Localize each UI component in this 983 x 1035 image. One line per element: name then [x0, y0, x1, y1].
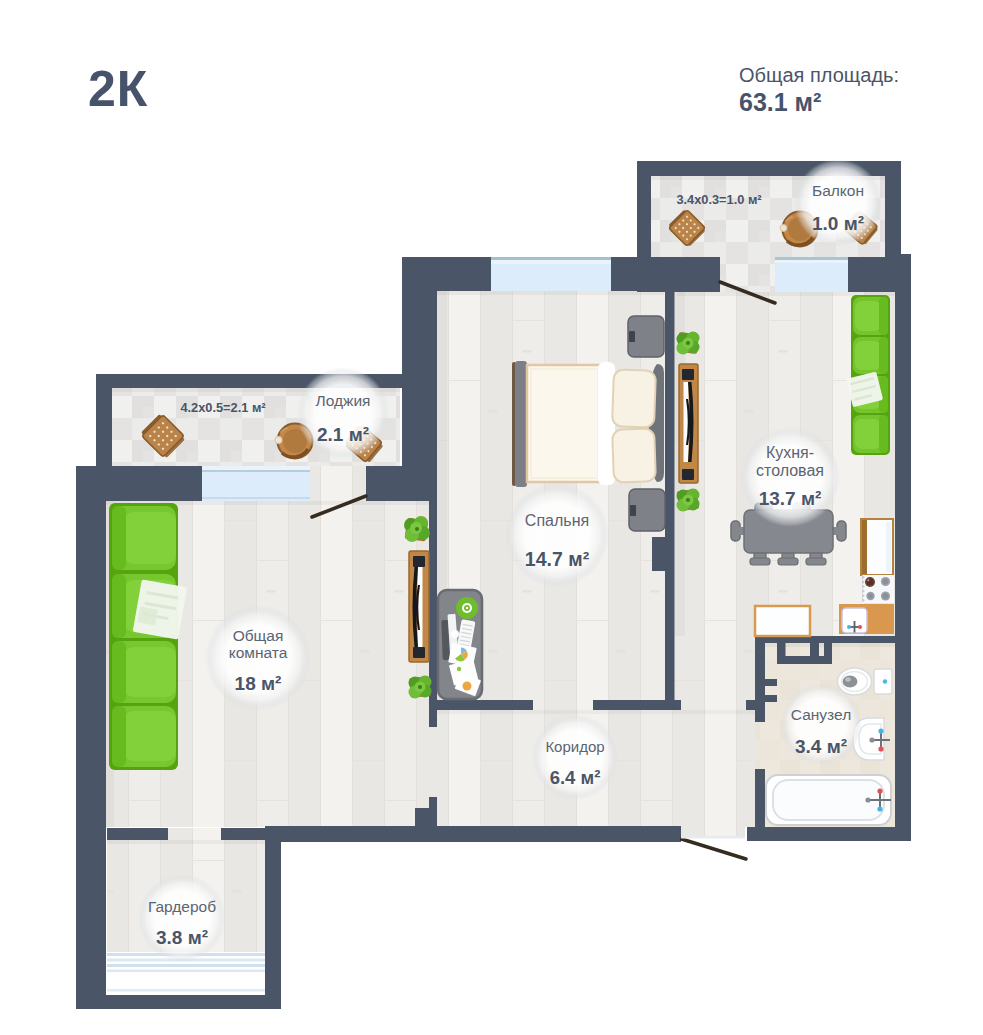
svg-text:63.1 м²: 63.1 м²	[739, 88, 821, 116]
svg-text:2К: 2К	[88, 61, 148, 117]
svg-text:4.2x0.5=2.1 м²: 4.2x0.5=2.1 м²	[180, 400, 265, 415]
svg-text:Лоджия: Лоджия	[316, 392, 371, 409]
svg-text:3.4x0.3=1.0 м²: 3.4x0.3=1.0 м²	[676, 192, 761, 207]
svg-text:Общая площадь:: Общая площадь:	[739, 64, 899, 86]
svg-text:столовая: столовая	[756, 462, 824, 479]
svg-text:3.8 м²: 3.8 м²	[156, 927, 208, 948]
svg-text:Коридор: Коридор	[545, 738, 604, 755]
svg-text:Общая: Общая	[233, 627, 284, 644]
svg-text:Спальня: Спальня	[525, 512, 589, 529]
svg-text:1.0 м²: 1.0 м²	[812, 213, 864, 234]
svg-text:комната: комната	[229, 644, 288, 661]
svg-text:14.7 м²: 14.7 м²	[525, 548, 590, 570]
svg-text:2.1 м²: 2.1 м²	[317, 424, 369, 445]
svg-text:Балкон: Балкон	[812, 182, 864, 199]
svg-text:3.4 м²: 3.4 м²	[795, 736, 847, 757]
svg-text:6.4 м²: 6.4 м²	[550, 767, 601, 788]
svg-text:Кухня-: Кухня-	[766, 444, 814, 461]
svg-text:Гардероб: Гардероб	[148, 898, 216, 915]
svg-text:18 м²: 18 м²	[235, 673, 282, 694]
svg-text:Санузел: Санузел	[791, 706, 851, 723]
svg-text:13.7 м²: 13.7 м²	[759, 488, 822, 509]
